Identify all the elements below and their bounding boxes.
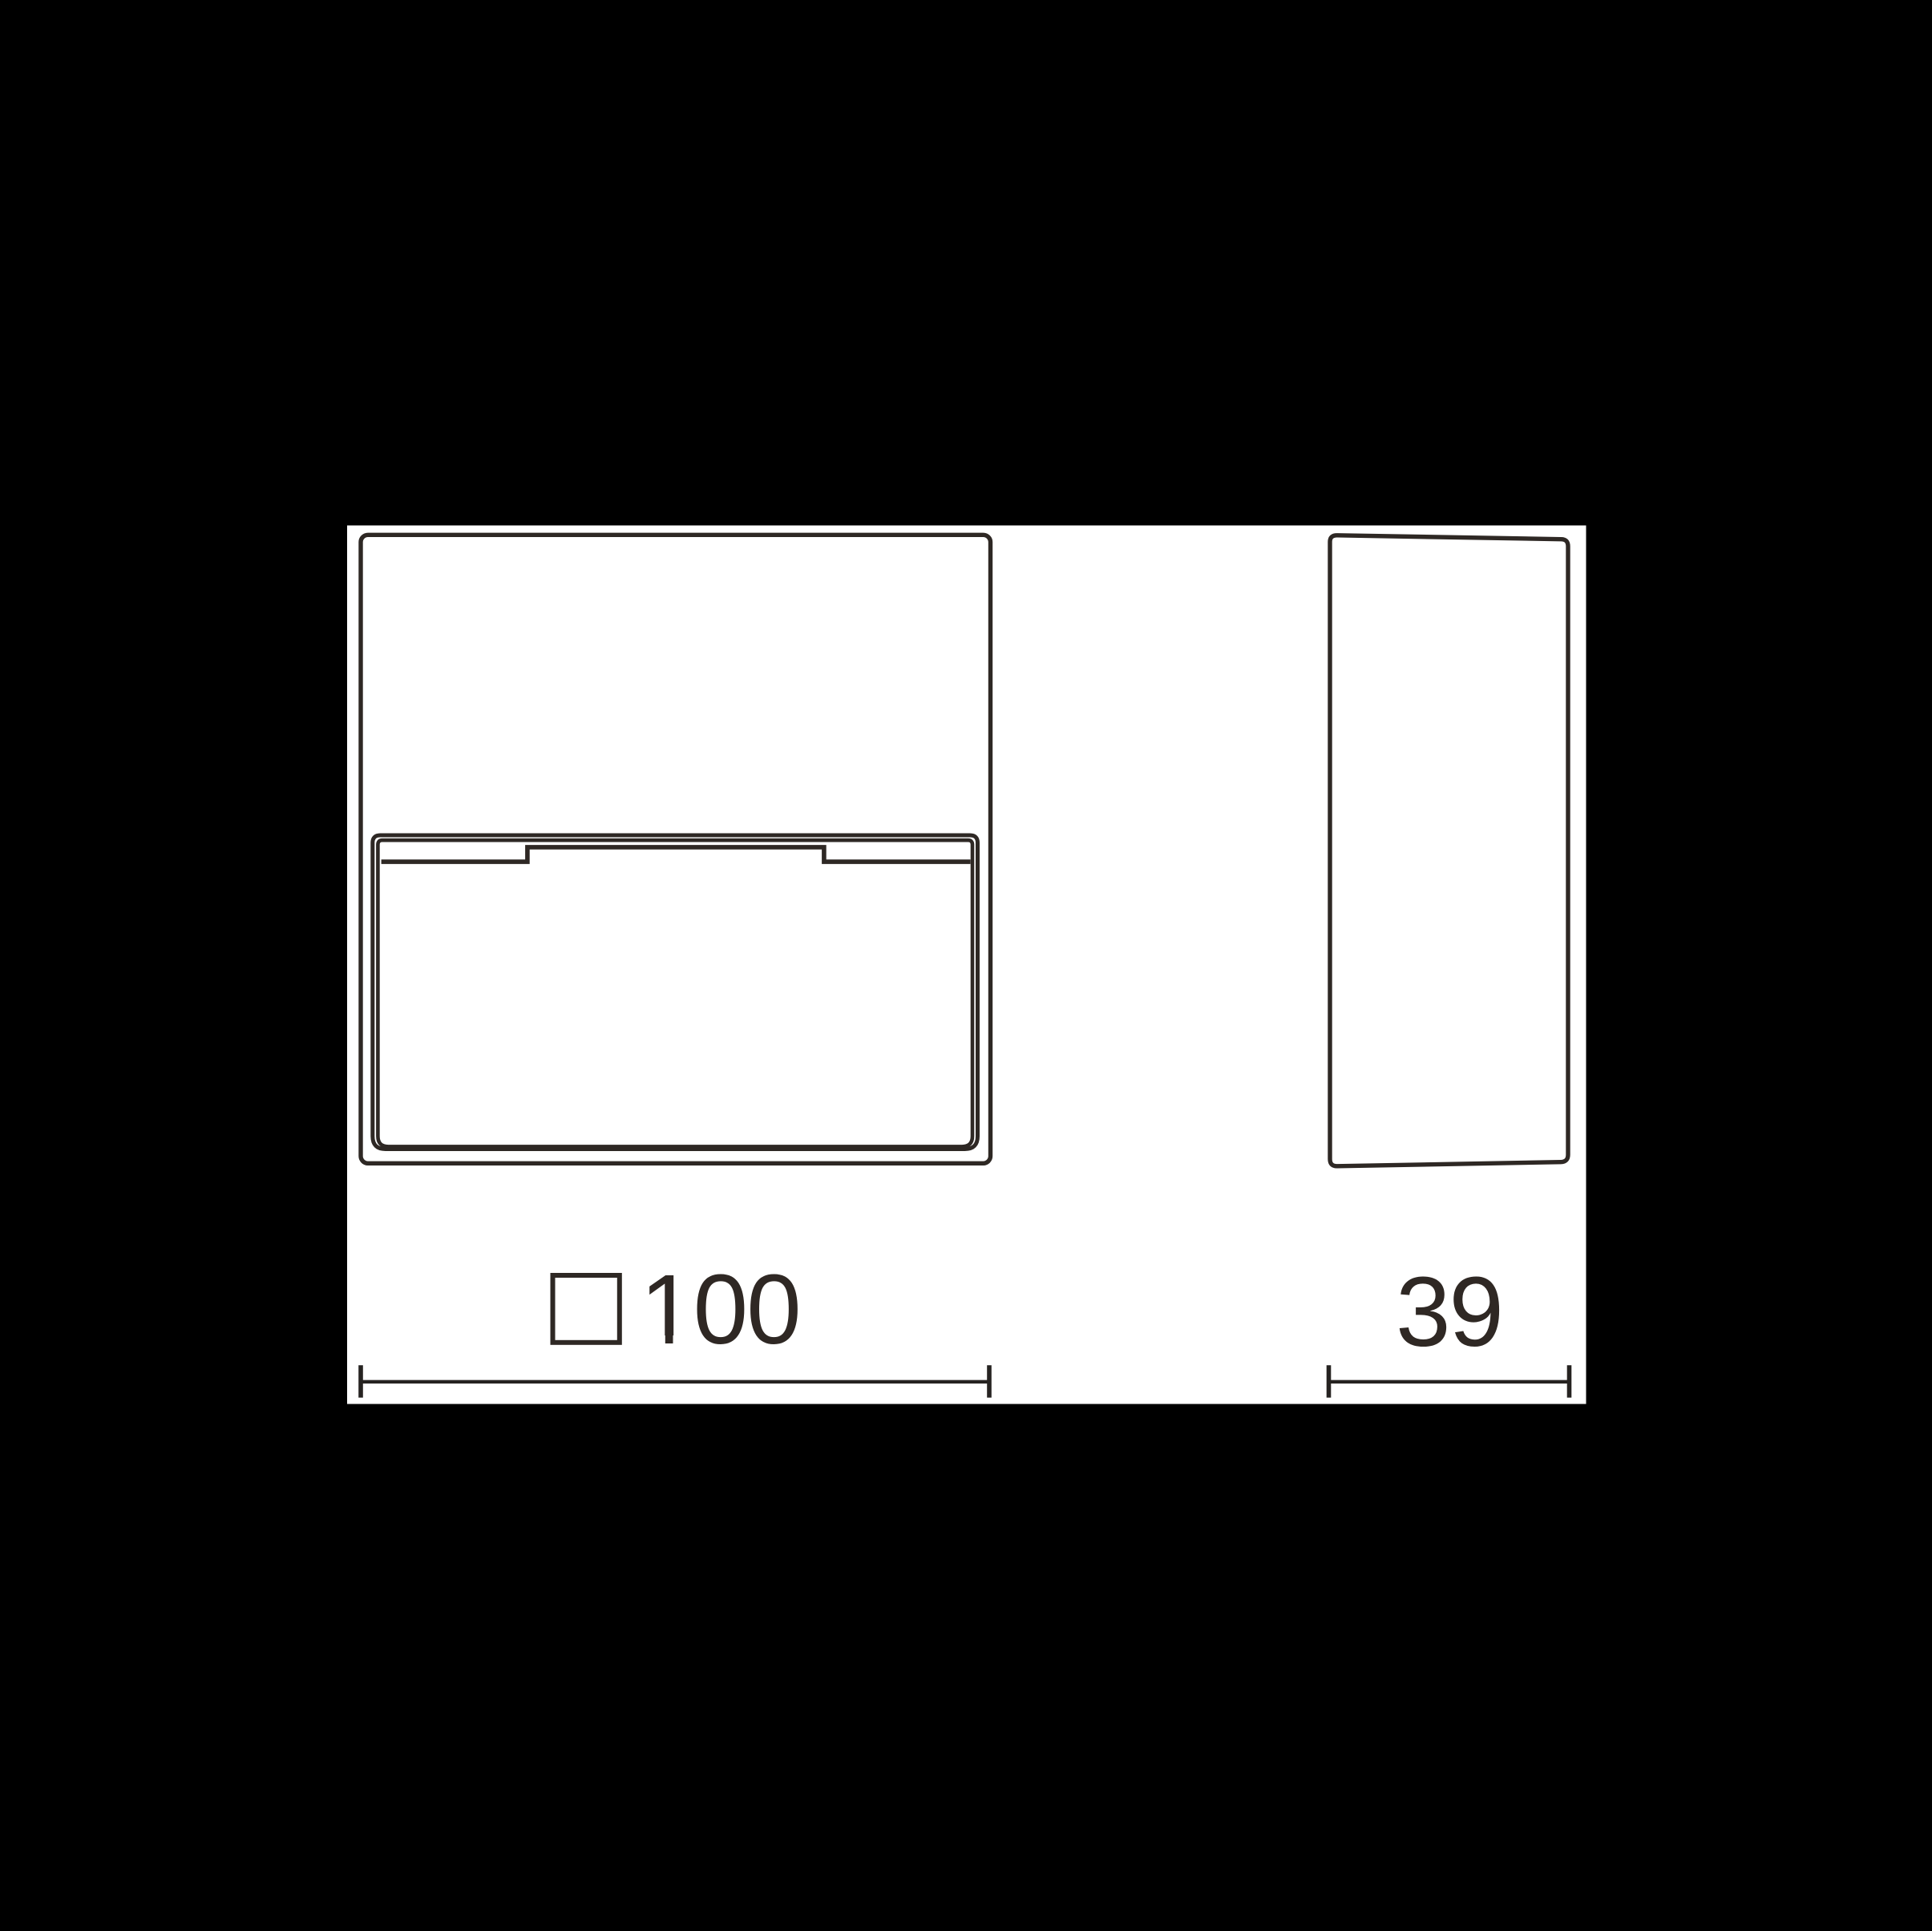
svg-text:100: 100 xyxy=(640,1255,799,1365)
svg-text:39: 39 xyxy=(1396,1258,1502,1367)
